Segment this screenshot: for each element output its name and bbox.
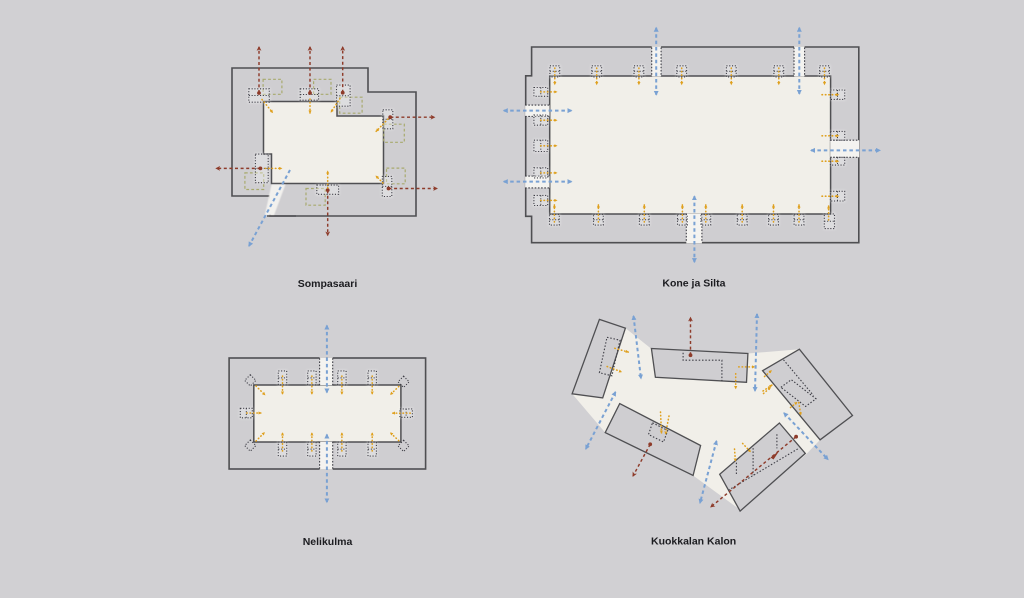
svg-text:Sompasaari: Sompasaari xyxy=(298,278,358,290)
svg-text:Nelikulma: Nelikulma xyxy=(303,536,353,548)
svg-text:Kuokkalan Kalon: Kuokkalan Kalon xyxy=(651,535,736,547)
svg-text:Kone ja Silta: Kone ja Silta xyxy=(662,278,725,290)
